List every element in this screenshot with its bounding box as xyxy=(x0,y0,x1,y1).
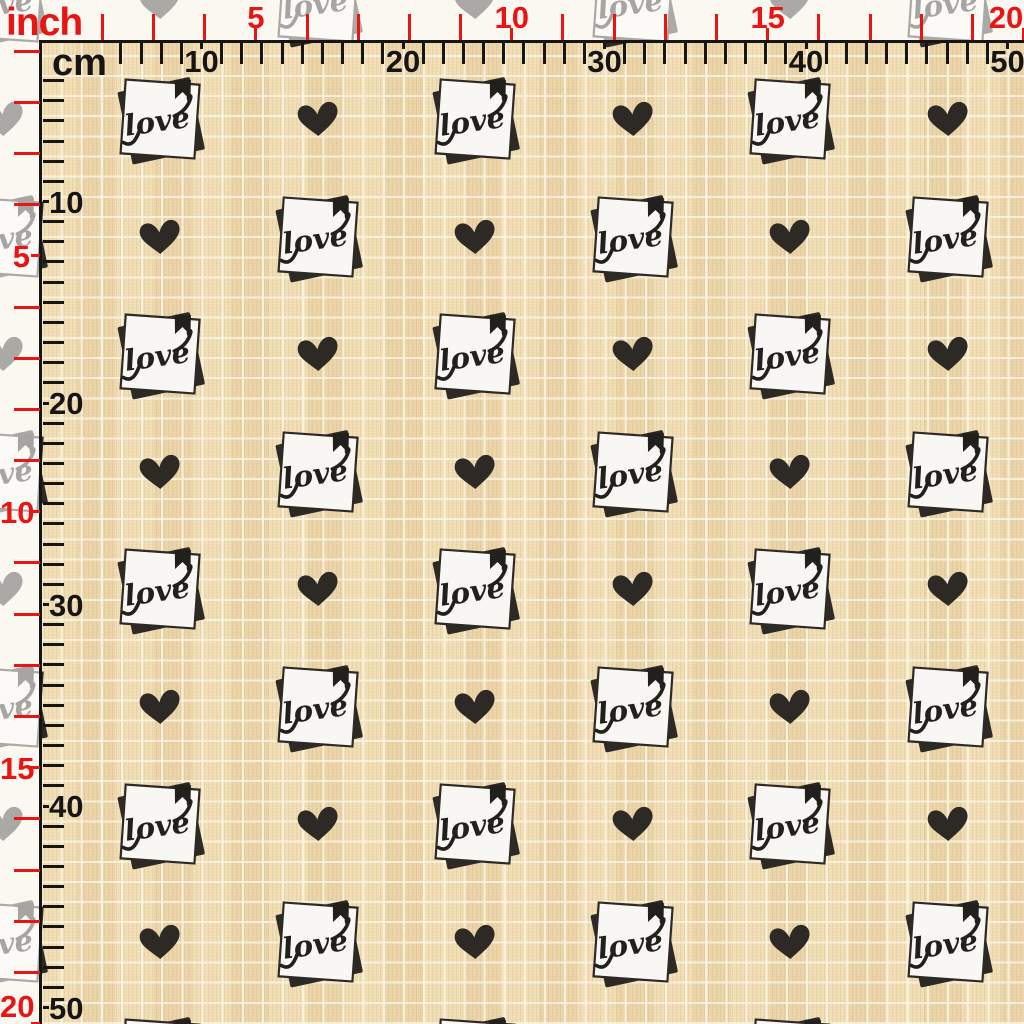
love-note-motif: love xyxy=(896,656,1000,760)
cm-tick xyxy=(623,43,626,64)
heart-shape xyxy=(927,101,969,137)
note-paper: love xyxy=(0,898,40,981)
heart-motif xyxy=(0,101,26,139)
cm-tick xyxy=(43,341,64,344)
heart-shape xyxy=(139,0,181,20)
inch-tick xyxy=(14,203,40,206)
cm-tick xyxy=(704,43,707,64)
love-note-motif: love xyxy=(581,421,685,525)
cm-tick xyxy=(301,43,304,64)
note-paper: love xyxy=(907,898,988,981)
cm-tick xyxy=(825,43,828,64)
inch-tick xyxy=(869,14,872,40)
cm-tick xyxy=(43,684,64,687)
cm-tick-label: 20 xyxy=(49,388,83,419)
inch-tick xyxy=(14,869,40,872)
note-paper: love xyxy=(277,428,358,511)
note-paper: love xyxy=(907,663,988,746)
cm-tick xyxy=(43,260,64,263)
cm-tick xyxy=(43,905,64,908)
heart-motif xyxy=(767,924,813,962)
cm-tick xyxy=(563,43,566,64)
ruler-horizontal-line xyxy=(39,40,1024,43)
cm-tick xyxy=(43,623,64,626)
note-paper: love xyxy=(434,310,515,393)
inch-tick xyxy=(203,14,206,40)
heart-shape xyxy=(454,454,496,490)
love-note-motif: love xyxy=(896,186,1000,290)
cm-tick xyxy=(946,43,949,64)
heart-shape xyxy=(612,571,654,607)
cm-tick xyxy=(361,43,364,64)
heart-motif xyxy=(925,571,971,609)
cm-tick xyxy=(684,43,687,64)
inch-tick xyxy=(152,14,155,40)
cm-tick-label: 40 xyxy=(49,791,83,822)
cm-tick xyxy=(180,43,183,64)
inch-tick xyxy=(14,971,40,974)
heart-motif xyxy=(452,219,498,257)
heart-motif xyxy=(137,0,183,22)
cm-tick xyxy=(43,966,64,969)
cm-tick xyxy=(43,240,64,243)
cm-tick xyxy=(43,281,64,284)
cm-tick xyxy=(43,442,64,445)
cm-tick-label: 10 xyxy=(184,46,218,77)
inch-tick-label: 20 xyxy=(989,2,1023,33)
heart-motif xyxy=(452,689,498,727)
heart-shape xyxy=(612,336,654,372)
heart-shape xyxy=(139,689,181,725)
note-paper: love xyxy=(277,193,358,276)
love-note-motif: love xyxy=(423,773,527,877)
heart-shape xyxy=(612,101,654,137)
note-paper: love xyxy=(907,193,988,276)
inch-tick xyxy=(971,14,974,40)
love-note-motif: love xyxy=(581,656,685,760)
heart-motif xyxy=(295,336,341,374)
cm-tick xyxy=(865,43,868,64)
heart-shape xyxy=(612,806,654,842)
inch-tick xyxy=(14,561,40,564)
inch-tick-label: 15 xyxy=(750,2,784,33)
cm-tick xyxy=(925,43,928,64)
heart-shape xyxy=(0,571,23,607)
note-paper: love xyxy=(592,663,673,746)
cm-tick xyxy=(43,925,64,928)
heart-motif xyxy=(925,101,971,139)
heart-shape xyxy=(769,689,811,725)
cm-tick xyxy=(43,361,64,364)
cm-tick xyxy=(281,43,284,64)
heart-motif xyxy=(137,924,183,962)
inch-tick xyxy=(14,306,40,309)
cm-tick xyxy=(43,563,64,566)
cm-tick xyxy=(43,663,64,666)
heart-motif xyxy=(137,454,183,492)
note-paper: love xyxy=(434,545,515,628)
note-paper: love xyxy=(119,310,200,393)
cm-tick xyxy=(43,462,64,465)
heart-motif xyxy=(295,101,341,139)
inch-tick-label: 15 xyxy=(0,753,30,784)
love-note-motif: love xyxy=(266,186,370,290)
cm-tick xyxy=(885,43,888,64)
note-paper: love xyxy=(749,75,830,158)
cm-tick xyxy=(43,744,64,747)
love-note-motif: love xyxy=(581,0,685,40)
note-paper: love xyxy=(119,75,200,158)
cm-unit-label: cm xyxy=(52,44,107,82)
inch-tick-label: 5 xyxy=(247,2,264,33)
heart-motif xyxy=(452,454,498,492)
love-note-motif: love xyxy=(896,421,1000,525)
love-note-motif: love xyxy=(108,303,212,407)
cm-tick xyxy=(43,321,64,324)
heart-motif xyxy=(610,336,656,374)
note-paper: love xyxy=(277,0,358,40)
note-paper: love xyxy=(592,193,673,276)
heart-motif xyxy=(767,454,813,492)
heart-shape xyxy=(139,454,181,490)
inch-tick xyxy=(14,152,40,155)
cm-tick-label: 20 xyxy=(386,46,420,77)
inch-tick xyxy=(14,408,40,411)
love-note-motif: love xyxy=(738,303,842,407)
heart-motif xyxy=(610,101,656,139)
heart-shape xyxy=(769,219,811,255)
note-paper: love xyxy=(277,663,358,746)
cm-tick xyxy=(43,764,64,767)
cm-tick xyxy=(43,422,64,425)
note-paper: love xyxy=(119,545,200,628)
cm-tick-label: 40 xyxy=(789,46,823,77)
love-note-motif: love xyxy=(108,538,212,642)
cm-tick xyxy=(663,43,666,64)
heart-motif xyxy=(767,689,813,727)
cm-tick xyxy=(43,865,64,868)
inch-tick xyxy=(920,14,923,40)
inch-tick xyxy=(561,14,564,40)
cm-tick xyxy=(43,522,64,525)
love-note-motif: love xyxy=(266,0,370,40)
cm-tick xyxy=(220,43,223,64)
cm-tick xyxy=(422,43,425,64)
inch-tick xyxy=(31,254,40,257)
inch-tick-label: 20 xyxy=(0,991,30,1022)
inch-unit-label: inch xyxy=(6,3,82,42)
cm-tick xyxy=(43,583,64,586)
heart-shape xyxy=(0,806,23,842)
love-note-motif: love xyxy=(0,186,40,290)
cm-tick xyxy=(43,160,64,163)
cm-tick xyxy=(764,43,767,64)
inch-tick xyxy=(817,14,820,40)
inch-tick xyxy=(357,14,360,40)
heart-motif xyxy=(0,336,26,374)
heart-shape xyxy=(927,336,969,372)
heart-shape xyxy=(769,924,811,960)
love-note-motif: love xyxy=(108,1008,212,1024)
inch-tick xyxy=(14,664,40,667)
heart-shape xyxy=(0,336,23,372)
cm-tick xyxy=(784,43,787,64)
cm-tick xyxy=(240,43,243,64)
love-note-motif: love xyxy=(108,68,212,172)
cm-tick xyxy=(966,43,969,64)
heart-motif xyxy=(0,806,26,844)
cm-tick xyxy=(43,704,64,707)
inch-tick xyxy=(14,920,40,923)
heart-shape xyxy=(927,806,969,842)
cm-tick xyxy=(43,643,64,646)
note-paper: love xyxy=(907,428,988,511)
heart-motif xyxy=(137,219,183,257)
cm-tick xyxy=(986,43,989,64)
inch-tick xyxy=(715,14,718,40)
inch-tick xyxy=(14,101,40,104)
love-note-motif: love xyxy=(266,656,370,760)
cm-tick xyxy=(43,502,64,505)
heart-motif xyxy=(925,806,971,844)
note-paper: love xyxy=(0,663,40,746)
cm-tick xyxy=(43,381,64,384)
cm-tick-label: 50 xyxy=(49,993,83,1024)
cm-tick xyxy=(140,43,143,64)
fabric-swatch: love love love lo xyxy=(0,0,1024,1024)
love-note-motif: love xyxy=(896,0,1000,40)
cm-tick xyxy=(43,784,64,787)
heart-shape xyxy=(297,571,339,607)
heart-motif xyxy=(137,689,183,727)
heart-shape xyxy=(297,806,339,842)
heart-shape xyxy=(454,924,496,960)
cm-tick xyxy=(43,220,64,223)
heart-shape xyxy=(139,219,181,255)
inch-tick xyxy=(14,613,40,616)
love-note-motif: love xyxy=(738,538,842,642)
cm-tick xyxy=(381,43,384,64)
inch-tick-label: 5 xyxy=(0,241,30,272)
faded-fabric-pattern: love love love lo xyxy=(0,40,40,1024)
love-note-motif: love xyxy=(423,68,527,172)
heart-motif xyxy=(767,219,813,257)
cm-tick xyxy=(43,986,64,989)
cm-tick xyxy=(119,43,122,64)
cm-tick xyxy=(43,99,64,102)
love-note-motif: love xyxy=(423,538,527,642)
heart-motif xyxy=(925,336,971,374)
cm-tick xyxy=(43,140,64,143)
cm-tick xyxy=(462,43,465,64)
love-note-motif: love xyxy=(738,773,842,877)
love-note-motif: love xyxy=(738,68,842,172)
inch-tick-label: 10 xyxy=(0,497,30,528)
cm-tick xyxy=(341,43,344,64)
note-paper: love xyxy=(592,898,673,981)
cm-tick xyxy=(260,43,263,64)
inch-tick xyxy=(14,817,40,820)
cm-tick xyxy=(845,43,848,64)
cm-tick-label: 10 xyxy=(49,187,83,218)
cm-tick xyxy=(43,885,64,888)
cm-tick xyxy=(43,825,64,828)
heart-shape xyxy=(0,101,23,137)
cm-tick xyxy=(43,724,64,727)
cm-tick xyxy=(522,43,525,64)
cm-tick xyxy=(583,43,586,64)
cm-tick xyxy=(43,180,64,183)
love-note-motif: love xyxy=(266,891,370,995)
heart-shape xyxy=(454,689,496,725)
heart-motif xyxy=(610,571,656,609)
love-note-motif: love xyxy=(423,303,527,407)
cm-tick xyxy=(744,43,747,64)
note-paper: love xyxy=(592,428,673,511)
love-note-motif: love xyxy=(0,891,40,995)
love-note-motif: love xyxy=(896,891,1000,995)
love-note-motif: love xyxy=(581,186,685,290)
heart-shape xyxy=(454,219,496,255)
love-note-motif: love xyxy=(581,891,685,995)
love-note-motif: love xyxy=(738,1008,842,1024)
note-paper: love xyxy=(119,780,200,863)
heart-shape xyxy=(297,101,339,137)
heart-motif xyxy=(295,806,341,844)
love-note-motif: love xyxy=(108,773,212,877)
inch-tick xyxy=(14,715,40,718)
heart-shape xyxy=(139,924,181,960)
note-paper: love xyxy=(434,780,515,863)
cm-tick xyxy=(43,119,64,122)
heart-shape xyxy=(297,336,339,372)
inch-tick xyxy=(14,50,40,53)
note-paper: love xyxy=(749,780,830,863)
cm-tick-label: 30 xyxy=(587,46,621,77)
heart-shape xyxy=(769,454,811,490)
cm-tick xyxy=(43,543,64,546)
cm-tick xyxy=(905,43,908,64)
cm-tick-label: 30 xyxy=(49,590,83,621)
heart-motif xyxy=(610,806,656,844)
inch-tick xyxy=(664,14,667,40)
cm-tick-label: 50 xyxy=(990,46,1024,77)
inch-tick xyxy=(14,459,40,462)
heart-shape xyxy=(927,571,969,607)
inch-tick xyxy=(306,14,309,40)
note-paper: love xyxy=(277,898,358,981)
inch-tick xyxy=(408,14,411,40)
cm-tick xyxy=(643,43,646,64)
cm-tick xyxy=(43,482,64,485)
note-paper: love xyxy=(749,545,830,628)
heart-motif xyxy=(295,571,341,609)
inch-tick xyxy=(613,14,616,40)
cm-tick xyxy=(321,43,324,64)
cm-tick xyxy=(160,43,163,64)
fade-strip-left: love love love lo xyxy=(0,40,40,1024)
inch-tick xyxy=(101,14,104,40)
cm-tick xyxy=(43,946,64,949)
cm-tick xyxy=(502,43,505,64)
cm-tick xyxy=(482,43,485,64)
cm-tick xyxy=(43,301,64,304)
note-paper: love xyxy=(434,75,515,158)
note-paper: love xyxy=(592,0,673,40)
ruler-vertical-line xyxy=(39,40,42,1024)
cm-tick xyxy=(724,43,727,64)
fabric-preview: love love love lo xyxy=(0,0,1024,1024)
love-note-motif: love xyxy=(266,421,370,525)
inch-tick-label: 10 xyxy=(495,2,529,33)
love-note-motif: love xyxy=(0,656,40,760)
note-paper: love xyxy=(749,310,830,393)
inch-tick xyxy=(14,357,40,360)
cm-tick xyxy=(43,845,64,848)
cm-tick xyxy=(543,43,546,64)
cm-tick xyxy=(442,43,445,64)
inch-tick xyxy=(459,14,462,40)
love-note-motif: love xyxy=(423,1008,527,1024)
heart-motif xyxy=(0,571,26,609)
heart-motif xyxy=(452,924,498,962)
